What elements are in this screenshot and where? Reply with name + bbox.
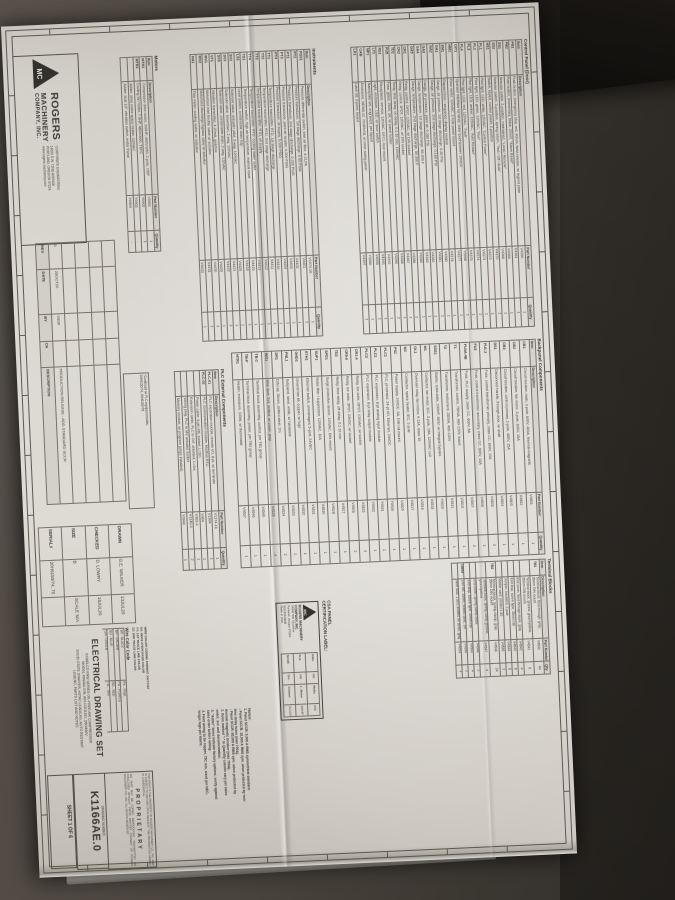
table-cell: 1 <box>201 312 209 341</box>
table-cell: V4505 <box>486 494 498 534</box>
table-cell: 1 <box>339 541 350 564</box>
table-cell: Y0930 <box>387 499 399 539</box>
table-cell <box>120 57 127 82</box>
table-cell: V4546 <box>248 505 260 545</box>
table-cell: 1 <box>290 543 301 566</box>
table-cell <box>507 560 514 576</box>
table-cell <box>91 312 105 339</box>
csa-certification-label: MC ROGERS MACHINERY COMPANY, INC.14600 S… <box>275 601 324 721</box>
csa-fields-table: Volts460Ph/Hz3/60FLA248L. Motor200HPSCCR… <box>281 652 321 718</box>
table-cell: V4530 <box>318 502 330 542</box>
table-cell: V4504 <box>496 494 508 534</box>
table-cell: V4527 <box>338 501 350 541</box>
table-cell: HTR1 <box>232 353 243 380</box>
table-cell: GEW <box>52 314 66 341</box>
table-cell: 1 <box>448 536 459 559</box>
table-cell: V4525 <box>357 500 369 540</box>
drawn-checked-table: DRAWNG.E. WILKER13JUL20CHECKEDD. LOWRY16… <box>38 523 136 627</box>
instruments-table: ItemDescriptionPart NumberQuantity PDS1P… <box>189 49 323 342</box>
table-cell: 1 <box>458 535 469 558</box>
table-cell: 2 <box>188 549 195 570</box>
table-cell: 3/60 <box>308 703 321 716</box>
table-header-cell: Qty <box>543 661 550 675</box>
table-cell: V4528 <box>328 501 340 541</box>
table-cell: MTR1 <box>139 57 146 82</box>
table-cell: 1 <box>201 548 208 569</box>
table-cell: 13JUL20 <box>111 594 135 624</box>
table-header-cell: Item <box>212 370 219 395</box>
table-cell: V4510 <box>457 496 469 536</box>
table-cell <box>75 241 89 268</box>
table-cell: 4 <box>480 663 490 677</box>
rogers-monogram-icon: MC <box>303 604 317 621</box>
table-cell <box>513 560 520 576</box>
table-cell: DS1 <box>489 341 500 368</box>
proprietary-block: THIS PRINT IS THE PROPERTY OF ROGERS MAC… <box>104 771 157 870</box>
table-cell: V4545 <box>499 640 506 663</box>
table-cell: 4 <box>359 540 370 563</box>
revision-table-section: 026OCT20GEWPRODUCTION RELEASE - ADD STAN… <box>23 240 127 506</box>
table-cell: 4 <box>270 544 281 567</box>
table-cell <box>180 371 187 396</box>
table-cell: 26OCT20 <box>50 269 65 314</box>
rogers-monogram-icon: MC <box>32 58 59 89</box>
table-cell: V4540 <box>258 505 270 545</box>
photo-of-drawing: { "colors":{"paper":"#d8d5cf","carpet":"… <box>0 0 675 900</box>
table-cell: V4544 <box>505 640 512 663</box>
table-cell: 1 <box>214 548 221 569</box>
table-cell: 44 <box>534 661 544 675</box>
table-cell <box>127 57 134 82</box>
wire-color-code-section: WIRE COLOR CODING FORMAT: XX/YY/ZZXX: IN… <box>102 627 151 733</box>
table-cell: 1 <box>329 541 340 564</box>
table-cell: 6 <box>506 662 513 676</box>
table-cell: 2 <box>280 543 291 566</box>
table-cell <box>452 563 459 579</box>
table-cell: 1 <box>195 549 202 570</box>
table-header-cell: Quantity <box>538 532 545 555</box>
table-cell: V4550 <box>461 642 468 665</box>
table-cell <box>187 371 194 396</box>
table-row: DRAWNG.E. WILKER13JUL20 <box>108 524 136 624</box>
control-panel-section: Control Panel (Door) ItemDescriptionPart… <box>320 39 541 336</box>
table-cell: MTR2 <box>133 57 140 82</box>
table-cell: FU4A-4B <box>459 342 470 369</box>
table-cell <box>470 562 477 578</box>
revision-table: 026OCT20GEWPRODUCTION RELEASE - ADD STAN… <box>35 240 127 505</box>
table-cell: 5kA <box>282 673 295 686</box>
drawing-title-block: ELECTRICAL DRAWING SET KOBELCO KNW SERIE… <box>40 627 104 771</box>
table-cell: CB3 <box>499 340 510 367</box>
table-cell: PS1 <box>390 345 401 372</box>
table-cell: SUP1 <box>311 349 322 376</box>
table-cell: 24 <box>490 663 500 677</box>
table-cell <box>78 313 92 340</box>
instruments-section: Instruments ItemDescriptionPart NumberQu… <box>162 48 329 343</box>
table-cell: PLC-02 <box>199 370 206 395</box>
table-cell: 4 <box>518 662 525 676</box>
table-cell: SCCR <box>281 653 294 673</box>
rogers-logo-block: MC ROGERSMACHINERYCOMPANY, INC. CORPORAT… <box>12 53 87 246</box>
motors-section: Motors ItemDescriptionPart NumberQuantit… <box>114 56 167 254</box>
table-header-cell: BY <box>38 314 52 341</box>
table-cell: V4507 <box>466 495 478 535</box>
csa-company-block: MC ROGERS MACHINERY COMPANY, INC.14600 S… <box>278 604 317 650</box>
table-cell: Y0931 <box>377 499 389 539</box>
table-cell: - <box>135 231 142 252</box>
table-cell: TB2 <box>485 561 496 577</box>
carpet-shadow <box>560 0 675 900</box>
table-cell: Other <box>458 563 465 579</box>
table-cell: 1 <box>207 548 214 569</box>
drawing-number-block: DRAWING NUMBER K1166AE.0 <box>73 773 109 870</box>
plc-external-section: PLC External Components ItemDescriptionP… <box>155 369 234 572</box>
table-cell: V4516 <box>417 497 429 537</box>
table-cell: 1 <box>141 231 148 252</box>
table-row: SIZEBSCALE N/A <box>62 526 90 626</box>
table-cell: 200HP <box>296 704 309 717</box>
table-cell: 1 <box>438 536 449 559</box>
table-cell: 2 <box>488 534 499 557</box>
table-cell: 1 <box>528 532 539 555</box>
table-cell <box>174 371 181 396</box>
backpanel-section: Backpanel Components ItemDescriptionPart… <box>228 338 551 568</box>
table-cell: V4517 <box>407 498 419 538</box>
table-cell: 16JUL20 <box>88 595 112 625</box>
notes-section: Notes:1. Panel SCCR: 5,000 A RMS symmetr… <box>154 708 256 808</box>
table-cell: FLA <box>293 653 306 673</box>
table-cell: 8 <box>512 662 519 676</box>
table-header-cell: DATE <box>36 270 51 315</box>
table-cell: 1 <box>300 542 311 565</box>
table-cell: 1 <box>250 545 261 568</box>
table-cell: 0 <box>48 243 62 270</box>
table-cell: 248 <box>294 672 307 685</box>
table-cell: TD2 <box>331 348 342 375</box>
company-name-line: ROGERS <box>48 92 62 142</box>
table-cell: PLC1 <box>380 346 391 373</box>
table-cell: V4532 <box>298 503 310 543</box>
table-cell: 1 <box>389 538 400 561</box>
table-cell: V4520 <box>397 498 409 538</box>
table-cell: 1 <box>320 541 331 564</box>
table-cell <box>101 240 115 267</box>
table-cell: PLC3 <box>360 347 371 374</box>
table-cell: Control <box>283 685 296 705</box>
drawing-sheet: Control Panel (Door) ItemDescriptionPart… <box>1 2 577 878</box>
table-cell: TB1 <box>529 559 540 575</box>
table-cell: 2 <box>468 535 479 558</box>
table-cell: B <box>63 559 88 598</box>
table-cell: 1 <box>379 539 390 562</box>
table-cell: V4506 <box>476 495 488 535</box>
table-cell: 1 <box>478 534 489 557</box>
table-cell: SCALE N/A <box>65 596 89 626</box>
table-cell <box>519 560 530 576</box>
table-cell: V4543 <box>511 639 518 662</box>
table-cell <box>495 561 502 577</box>
table-cell: 2 <box>462 664 469 678</box>
csa-label-section: CSA PANELCERTIFICATION LABEL: MC ROGERS … <box>247 600 336 722</box>
table-cell: 1 <box>399 538 410 561</box>
table-cell: WD1 <box>261 351 272 378</box>
table-cell: FU1-2 <box>479 341 490 368</box>
table-cell: SERIAL# <box>38 527 63 561</box>
table-cell: 1 <box>363 305 371 334</box>
table-cell: 1 <box>518 532 529 555</box>
table-cell: DRAWN <box>108 524 133 558</box>
table-cell: DR1 <box>271 351 282 378</box>
table-row: SERIAL#20H6150/74, 75 <box>38 527 66 627</box>
paper-sheet: Control Panel (Door) ItemDescriptionPart… <box>1 2 577 878</box>
table-cell: 4 <box>468 664 475 678</box>
table-cell: 1 <box>508 533 519 556</box>
table-cell: CR5-6 <box>341 348 352 375</box>
terminal-blocks-section: Terminal Blocks ItemDescriptionPart Numb… <box>328 558 557 684</box>
table-cell: 3 <box>456 665 463 679</box>
drawn-checked-block: DRAWNG.E. WILKER13JUL20CHECKEDD. LOWRY16… <box>36 523 136 627</box>
table-cell: 2 <box>474 664 481 678</box>
table-cell <box>106 338 120 365</box>
table-cell: V4502 <box>516 493 528 533</box>
table-cell <box>62 242 76 269</box>
table-cell: PLC-01 <box>206 370 213 395</box>
table-cell: V4511 <box>447 496 459 536</box>
table-cell: V4501 <box>526 492 538 532</box>
table-cell: 20H6150/74, 75 <box>40 560 65 599</box>
table-cell: 1 <box>240 545 251 568</box>
table-cell: V4547 <box>479 641 490 664</box>
table-cell <box>476 562 487 578</box>
table-cell: PNL1 <box>281 350 292 377</box>
company-name: ROGERSMACHINERYCOMPANY, INC. <box>34 92 63 142</box>
table-cell: 1 <box>260 544 271 567</box>
table-header-cell: Part Number <box>542 638 549 661</box>
table-header-cell: Item <box>539 559 546 575</box>
table-cell: V4533 <box>288 503 300 543</box>
table-cell: Y0920 <box>437 497 449 537</box>
plc-external-table: ItemDescriptionPart NumberQuantity PLC-0… <box>173 369 227 571</box>
table-cell: V4526 <box>347 501 359 541</box>
table-cell: T2 <box>440 343 451 370</box>
table-cell: GND1 <box>291 350 302 377</box>
table-cell: 460 <box>306 672 319 685</box>
table-cell: 1 <box>429 536 440 559</box>
table-cell: 1 <box>147 231 154 252</box>
table-cell: T1 <box>450 343 461 370</box>
table-cell: M2 <box>400 345 411 372</box>
sheet-number: SHEET 1 OF 6 <box>65 805 73 839</box>
table-cell: V4543 <box>467 641 474 664</box>
table-cell: 1 <box>498 533 509 556</box>
table-row: CHECKEDD. LOWRY16JUL20 <box>85 525 113 625</box>
table-header-cell: Quantity <box>154 231 161 252</box>
table-cell: AC120V 15A <box>283 704 296 717</box>
table-cell: V4541 <box>523 639 534 662</box>
table-cell: ETH1 <box>301 349 312 376</box>
table-cell: Y0932 <box>367 500 379 540</box>
table-cell: PLC2 <box>370 346 381 373</box>
company-address: CORPORATE ENGINEERING14600 S.W. 72ND AVE… <box>41 145 61 190</box>
table-cell <box>76 268 91 313</box>
table-cell: - <box>128 232 135 253</box>
table-cell: V4531 <box>308 502 320 542</box>
table-header-cell: REV <box>35 243 49 270</box>
table-cell: V4515 <box>427 497 439 537</box>
table-cell: 2 <box>349 540 360 563</box>
table-cell: TB-P <box>241 352 252 379</box>
table-cell <box>88 241 102 268</box>
table-cell: D. LOWRY <box>86 557 111 596</box>
table-cell: SIZE <box>62 526 87 560</box>
table-cell: L. Motor <box>295 684 308 704</box>
table-cell: 1 <box>310 542 321 565</box>
table-cell: V4551 <box>455 642 462 665</box>
table-cell: M1 <box>420 344 431 371</box>
table-cell <box>92 338 106 365</box>
table-cell: 1 <box>182 549 189 570</box>
table-cell: SPD1 <box>321 349 332 376</box>
table-header-cell: Item <box>146 56 153 81</box>
backpanel-table: ItemDescriptionPart NumberQuantity CB1Ci… <box>231 339 545 569</box>
table-cell: SSS1 <box>430 344 441 371</box>
table-header-cell: CK <box>40 341 54 368</box>
table-cell <box>79 339 93 366</box>
table-header-cell: Item <box>529 339 537 366</box>
table-cell <box>53 340 67 367</box>
table-cell: CR1-4 <box>350 347 361 374</box>
table-cell <box>65 313 79 340</box>
table-cell: V4546 <box>489 640 500 663</box>
control-panel-table: ItemDescriptionPart NumberQuantity PB1Pu… <box>350 39 535 334</box>
table-header-cell: Quantity <box>220 548 227 569</box>
table-cell: V4503 <box>506 493 518 533</box>
table-cell: V4535 <box>268 504 280 544</box>
table-cell: V4542 <box>517 639 524 662</box>
table-cell: G.E. WILKER <box>109 556 134 595</box>
table-cell <box>66 340 80 367</box>
table-cell: OL1 <box>410 344 421 371</box>
table-cell: 1 <box>369 539 380 562</box>
table-cell <box>102 267 117 312</box>
table-cell: 2 <box>500 663 507 677</box>
table-cell: V4540 <box>533 638 544 661</box>
table-cell <box>501 561 508 577</box>
table-cell: V4537 <box>238 506 250 546</box>
table-cell <box>89 267 104 312</box>
sheet-number-block: SHEET 1 OF 6 <box>47 774 77 869</box>
table-cell: Ph/Hz <box>307 684 320 704</box>
table-cell: CB1 <box>519 340 530 367</box>
table-cell <box>63 268 78 313</box>
table-cell: 6 <box>524 661 534 675</box>
table-cell: 1 <box>419 537 430 560</box>
table-cell: FU3 <box>469 342 480 369</box>
table-cell: TB-C <box>251 352 262 379</box>
table-cell: V4548 <box>473 641 480 664</box>
table-cell <box>104 311 118 338</box>
table-cell <box>42 597 66 627</box>
table-cell <box>464 562 471 578</box>
table-cell: Volts <box>305 652 318 672</box>
table-cell <box>193 370 200 395</box>
table-cell: CB2 <box>509 340 520 367</box>
table-cell: CHECKED <box>85 525 110 559</box>
table-cell: V4534 <box>278 504 290 544</box>
terminal-blocks-table: ItemDescriptionPart NumberQty TB1Termina… <box>451 558 551 678</box>
table-cell: 1 <box>409 537 420 560</box>
